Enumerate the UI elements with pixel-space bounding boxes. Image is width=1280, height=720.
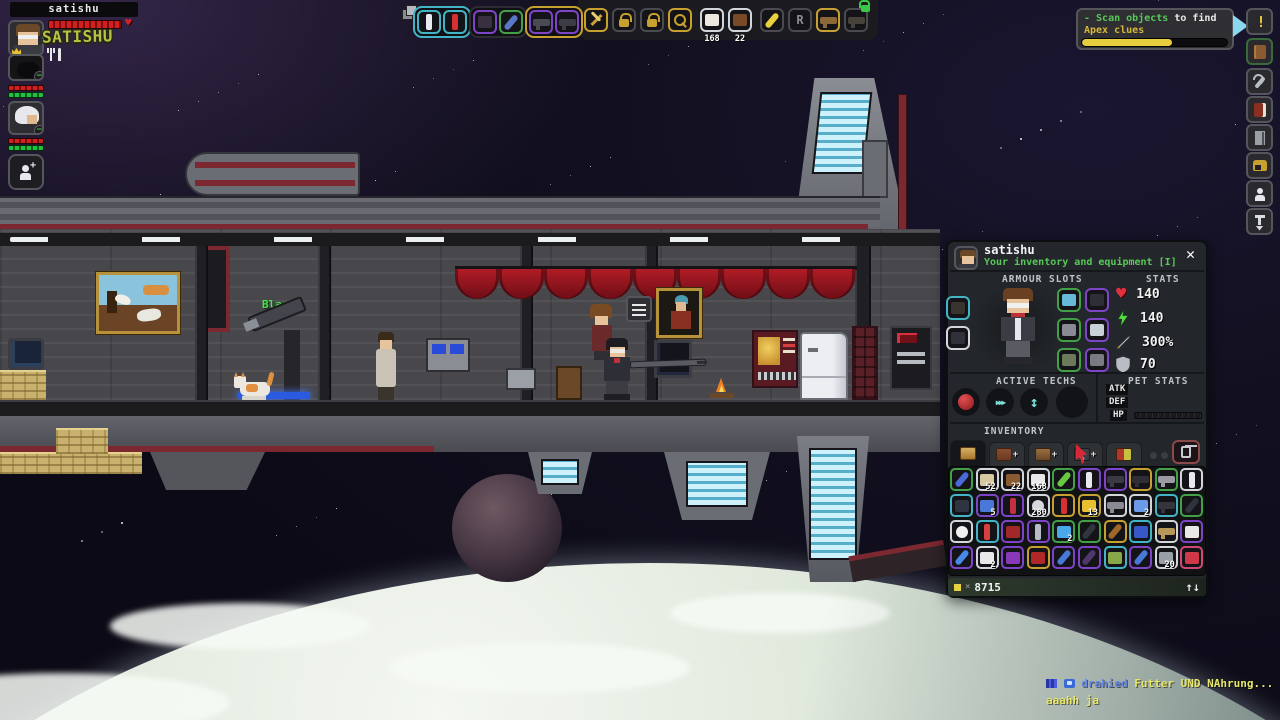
quest-target: Apex: [1084, 25, 1108, 36]
gun-item[interactable]: [1129, 468, 1152, 491]
feather-item[interactable]: [950, 546, 973, 569]
exclamation-icon: [1252, 14, 1268, 30]
console-screen: [432, 344, 446, 354]
star: [1236, 434, 1237, 435]
hat-item[interactable]: [1129, 520, 1152, 543]
flare-item[interactable]: [1052, 494, 1075, 517]
helmet-slot[interactable]: [1057, 288, 1081, 312]
player-portrait[interactable]: [8, 20, 44, 56]
paint-tool-locked[interactable]: [612, 8, 636, 32]
pixels-icon: [954, 584, 961, 591]
panel-item[interactable]: 2: [1052, 520, 1075, 543]
display-line: [783, 338, 795, 341]
device-item[interactable]: 5: [976, 494, 999, 517]
stack-count: 2: [990, 561, 995, 570]
blue-item[interactable]: [1129, 546, 1152, 569]
preview-shirt: [1015, 318, 1021, 340]
gun-item[interactable]: [529, 10, 553, 34]
console: [426, 338, 470, 372]
crew-button[interactable]: [1246, 180, 1273, 207]
stack-count: 168: [704, 35, 719, 44]
stack-count: 52: [985, 483, 995, 492]
bear-item[interactable]: 22: [1001, 468, 1024, 491]
wooden-crate: [556, 366, 582, 400]
star: [1060, 120, 1062, 122]
stat-energy: 140: [1116, 307, 1163, 329]
pet-hp-bar: [1134, 412, 1202, 419]
cloud: [670, 593, 890, 633]
pearl-earring-painting: [656, 288, 702, 338]
star: [1235, 124, 1236, 125]
tab-dot: [1150, 452, 1157, 459]
back-slot[interactable]: [946, 326, 970, 350]
rod-item[interactable]: [950, 468, 973, 491]
pet-stats-label: PET STATS: [1128, 376, 1188, 387]
helmet-cosmetic-slot[interactable]: [1085, 288, 1109, 312]
npc-coat: [376, 349, 396, 387]
crew-health-bar: [8, 85, 44, 91]
vent-line: [897, 360, 925, 364]
lightning-icon: [1116, 309, 1130, 327]
cosmetic-armour-column: [946, 296, 970, 350]
star: [688, 46, 689, 47]
star: [218, 92, 219, 93]
player-legs: [606, 381, 628, 394]
stack-count: 22: [735, 35, 745, 44]
rocket-item: [984, 524, 990, 540]
book-item[interactable]: [1001, 520, 1024, 543]
sandstone-steps: [56, 428, 108, 454]
attack-value: 300%: [1142, 335, 1173, 350]
star: [121, 522, 123, 524]
pet-preview-circle: [1056, 386, 1088, 418]
plus-label: +: [1052, 450, 1057, 460]
pet-def-label: DEF: [1106, 397, 1128, 408]
locker-icon: [1254, 130, 1266, 146]
engine-pod: [185, 152, 360, 196]
gun-item[interactable]: [555, 10, 579, 34]
star: [101, 531, 103, 533]
hotbar-pair-3: [525, 6, 583, 38]
stack-count: 13: [1088, 509, 1098, 518]
rifle-selected[interactable]: [816, 8, 840, 32]
pod-window: [686, 461, 748, 507]
medkit-item: [705, 14, 719, 26]
head-cosmetic-slot: [951, 302, 965, 314]
cat-patch: [246, 384, 258, 392]
fork-weapon: [1086, 472, 1092, 488]
sword-item: [1010, 498, 1016, 514]
pickaxe-icon: [588, 12, 604, 28]
painting-hills: [143, 285, 169, 295]
star: [1177, 226, 1178, 227]
magnify-icon: [672, 12, 688, 28]
plus-label: +: [1013, 450, 1018, 460]
star: [473, 60, 474, 61]
disk-item[interactable]: 2: [1129, 494, 1152, 517]
cap-item[interactable]: [1104, 546, 1127, 569]
gun-item: [559, 19, 576, 26]
hull-pod: [528, 452, 592, 494]
sort-button[interactable]: ↑↓: [1186, 580, 1200, 594]
legs-slot: [1062, 354, 1076, 366]
dice-item: [1185, 552, 1199, 564]
stack-count: 280: [1031, 509, 1046, 518]
crew-portrait-blacky[interactable]: −: [8, 54, 44, 81]
star: [943, 14, 944, 15]
bow-item[interactable]: [1180, 494, 1203, 517]
curtain-scallop: [766, 269, 810, 299]
bandage-item[interactable]: 52: [976, 468, 999, 491]
paper-item: [1185, 526, 1199, 538]
add-crew-button[interactable]: [8, 154, 44, 190]
fridge-door-split: [802, 376, 846, 378]
star: [883, 41, 884, 42]
hull-pod: [150, 452, 265, 490]
chest-slot[interactable]: [1057, 318, 1081, 342]
star: [258, 74, 259, 75]
hotbar-weapons: R: [760, 8, 868, 32]
medkit-item[interactable]: 168: [1027, 468, 1050, 491]
red-screen: [897, 333, 917, 343]
dismiss-badge[interactable]: −: [34, 125, 44, 135]
collections-button[interactable]: [1246, 124, 1273, 151]
violin-item: [1107, 523, 1123, 540]
wall-beam: [318, 246, 331, 400]
curtain-scallop: [721, 269, 765, 299]
sword-item: [1035, 524, 1041, 540]
curtain-scallop: [810, 269, 854, 299]
beam-down-icon: [1252, 214, 1268, 230]
star: [550, 184, 551, 185]
wall-beam: [195, 246, 208, 400]
gold-screen: [758, 337, 780, 365]
arcade-display: [752, 330, 798, 388]
guitar-item: [1082, 523, 1098, 540]
hotbar-consumables: 16822: [700, 8, 752, 32]
feather-item: [954, 549, 970, 566]
bear-item: [733, 14, 747, 26]
sword-item[interactable]: [1001, 494, 1024, 517]
jump-icon: ↕: [1029, 393, 1038, 411]
matter-manipulator[interactable]: [584, 8, 608, 32]
crew-energy-bar: [8, 92, 44, 98]
chat-line-2: aaahh ja: [1046, 694, 1099, 707]
curtain-scallop: [544, 269, 588, 299]
panel-vdivider: [1096, 374, 1098, 422]
star: [453, 69, 454, 70]
rifle-item: [848, 17, 865, 24]
journal-icon: [1254, 103, 1266, 117]
tab-food[interactable]: [1106, 442, 1142, 466]
quest-log-button[interactable]: [1246, 8, 1273, 35]
display-line: [783, 350, 795, 353]
chest-cosmetic-slot: [1090, 324, 1104, 336]
star-item[interactable]: 280: [1027, 494, 1050, 517]
star: [238, 83, 239, 84]
quest-progress-bar: [1081, 38, 1228, 47]
dark-item[interactable]: [473, 10, 497, 34]
ship-chimney: [862, 140, 888, 198]
purple-item: [1082, 549, 1098, 566]
goggles-item[interactable]: [950, 494, 973, 517]
campfire: [710, 376, 734, 400]
panel-bottom-bar: × 8715 ↑↓: [948, 578, 1206, 596]
star: [336, 508, 337, 509]
red-pipe-column: [852, 326, 878, 400]
blue-item: [1133, 549, 1149, 566]
document-item[interactable]: 2: [976, 546, 999, 569]
star: [648, 64, 649, 65]
star: [668, 55, 669, 56]
journal-button[interactable]: [1246, 96, 1273, 123]
quest-text: - Scan objects to find Apex clues: [1084, 13, 1226, 37]
sword-item[interactable]: [1027, 520, 1050, 543]
star: [1020, 138, 1022, 140]
star: [395, 171, 396, 172]
face: [676, 302, 686, 311]
star: [296, 526, 297, 527]
star: [375, 180, 376, 181]
bottle-item[interactable]: [1052, 468, 1075, 491]
robot-part-item[interactable]: 20: [1155, 546, 1178, 569]
chat-avatar-icon: [1064, 679, 1075, 688]
hunger-icon: [47, 48, 63, 64]
deploy-button[interactable]: [1246, 208, 1273, 235]
rocket-item[interactable]: [976, 520, 999, 543]
logs: [710, 393, 734, 398]
player-scarf: [614, 358, 620, 363]
tech-slot-ball[interactable]: [952, 388, 980, 416]
starbound-game-screen: Blacky: [0, 0, 1280, 720]
painting-tree: [107, 291, 117, 313]
legs-cosmetic-slot[interactable]: [1085, 348, 1109, 372]
dash-icon: ▶▶▶: [996, 398, 1004, 407]
blocks-icon: [996, 448, 1012, 461]
heart-icon: ♥: [1116, 284, 1126, 304]
character-preview: [990, 288, 1046, 370]
health-value: 140: [1136, 287, 1159, 302]
crate-icon: [960, 447, 976, 460]
curtain-scallop: [588, 269, 632, 299]
stat-attack: 300%: [1116, 331, 1173, 353]
red-book-item[interactable]: [1027, 546, 1050, 569]
fridge-handle: [808, 348, 818, 352]
cloud: [110, 603, 370, 649]
crew-face: [27, 115, 37, 124]
tab-objects[interactable]: +: [1028, 442, 1064, 466]
gun-item: [1158, 528, 1175, 535]
flare-item[interactable]: [443, 10, 467, 34]
banana-item[interactable]: [760, 8, 784, 32]
wire-tool-locked[interactable]: [640, 8, 664, 32]
fridge: [800, 332, 848, 400]
plus-label: +: [1091, 450, 1096, 460]
npc-boots: [378, 387, 394, 400]
dali-painting: [96, 272, 180, 334]
goggles-item: [955, 500, 969, 512]
guitar-item[interactable]: [1078, 520, 1101, 543]
quest-objective: - Scan objects: [1084, 13, 1168, 24]
tuning-fork-item: [426, 14, 432, 30]
gun-item[interactable]: [1155, 494, 1178, 517]
distortion-sphere-icon: [958, 394, 974, 410]
cloud: [0, 673, 230, 720]
ship-roof: [0, 196, 880, 226]
console-screen: [450, 344, 464, 354]
head-cosmetic-slot[interactable]: [946, 296, 970, 320]
star: [610, 157, 611, 158]
crafting-button[interactable]: [1246, 68, 1273, 95]
star: [413, 87, 414, 88]
mini-face: [962, 256, 974, 264]
star: [160, 194, 161, 195]
tech-slot-dash[interactable]: ▶▶▶: [986, 388, 1014, 416]
purple-item[interactable]: [1078, 546, 1101, 569]
hotbar-pair-1: [413, 6, 471, 38]
blue-item[interactable]: [1052, 546, 1075, 569]
stack-count: 2: [1144, 509, 1149, 518]
close-button[interactable]: ✕: [1186, 245, 1195, 263]
star: [982, 231, 983, 232]
gun-item[interactable]: [1155, 520, 1178, 543]
blue-rod-item[interactable]: [499, 10, 523, 34]
essentials-bar: [584, 8, 692, 32]
player-nameplate: satishu: [10, 2, 138, 17]
hull-tip: [848, 540, 947, 582]
chat-line-1: drahied Futter UND NAhrung...: [1046, 677, 1273, 690]
tuning-fork-item[interactable]: [417, 10, 441, 34]
curtain-scallop: [499, 269, 543, 299]
gun-item[interactable]: [1104, 494, 1127, 517]
bear-item[interactable]: 22: [728, 8, 752, 32]
star: [1158, 0, 1159, 1]
preview-glasses: [1007, 303, 1029, 308]
helmet-slot: [1062, 294, 1076, 306]
tab-materials[interactable]: +: [989, 442, 1025, 466]
battery-item[interactable]: 13: [1078, 494, 1101, 517]
chat-badge-icon: [1046, 679, 1057, 688]
helmet-cosmetic-slot: [1090, 294, 1104, 306]
star: [1256, 425, 1257, 426]
banner-item[interactable]: [1001, 546, 1024, 569]
heart-icon: ♥: [125, 16, 132, 29]
sword-icon: [1116, 334, 1132, 350]
dice-item[interactable]: [1180, 546, 1203, 569]
lock-icon: [616, 12, 632, 28]
pet-atk-label: ATK: [1106, 384, 1128, 395]
porthole-window: [8, 338, 44, 370]
violin-item[interactable]: [1104, 520, 1127, 543]
blue-rod-item: [503, 14, 519, 31]
tech-slot-jump[interactable]: ↕: [1020, 388, 1048, 416]
sandstone-ledge: [0, 370, 46, 400]
panel-portrait: [954, 246, 978, 270]
quest-target2: clues: [1114, 25, 1144, 36]
chat-username: drahied: [1081, 677, 1127, 690]
stack-count: 2: [1067, 535, 1072, 544]
flare-item: [452, 14, 458, 30]
inventory-tabs: +++: [950, 440, 1142, 466]
food-icon: [1116, 448, 1132, 461]
engine-stripe: [195, 180, 355, 186]
preview-pants: [1006, 341, 1030, 357]
inventory-label: INVENTORY: [984, 426, 1044, 437]
pixels-x-label: ×: [965, 582, 970, 592]
crew-icon: [1252, 186, 1268, 202]
codex-icon: [1254, 45, 1266, 59]
list-lines-icon: [632, 302, 646, 316]
player-glasses: [610, 349, 625, 353]
turret-base: [284, 330, 300, 400]
display-buttons: [758, 372, 796, 380]
ship-floor: [0, 400, 940, 416]
star: [786, 471, 787, 472]
gun-item[interactable]: [1104, 468, 1127, 491]
orb-item: [956, 526, 968, 538]
gun-item: [1158, 502, 1175, 509]
star: [766, 480, 767, 481]
crew-portrait-npc[interactable]: −: [8, 101, 44, 135]
paper-item[interactable]: [1180, 520, 1203, 543]
quest-connector: to find: [1168, 13, 1216, 24]
chest-cosmetic-slot[interactable]: [1085, 318, 1109, 342]
orb-item[interactable]: [950, 520, 973, 543]
book-item: [1006, 526, 1020, 538]
r-slot[interactable]: R: [788, 8, 812, 32]
gun-item[interactable]: [1155, 468, 1178, 491]
gun-item: [533, 19, 550, 26]
portrait-glasses: [18, 35, 38, 39]
codex-button[interactable]: [1246, 38, 1273, 65]
ceiling-lights: [10, 237, 930, 242]
trash-button[interactable]: [1172, 440, 1200, 464]
medkit-item[interactable]: 168: [700, 8, 724, 32]
pet-hp-label: HP: [1110, 410, 1127, 421]
curtain-scallop: [455, 269, 499, 299]
tab-dot: [1161, 452, 1168, 459]
dress: [671, 311, 691, 329]
stack-count: 22: [1011, 483, 1021, 492]
star: [863, 50, 864, 51]
gun-item: [1132, 476, 1149, 483]
objects-icon: [1035, 448, 1051, 461]
star: [316, 517, 317, 518]
star: [3, 106, 4, 107]
cat-blacky: [234, 374, 274, 400]
player-name-overlay: SATISHU: [42, 26, 113, 46]
dark-console: [890, 326, 932, 390]
star: [276, 535, 277, 536]
sewing-button[interactable]: [1246, 152, 1273, 179]
star: [198, 101, 199, 102]
dagger-item[interactable]: [1180, 468, 1203, 491]
dismiss-badge[interactable]: −: [34, 71, 44, 81]
defense-value: 70: [1140, 357, 1156, 372]
tab-items[interactable]: [950, 440, 986, 466]
quest-progress-fill: [1082, 39, 1172, 46]
npc-face: [595, 316, 608, 325]
npc-woman: [374, 332, 398, 400]
legs-slot[interactable]: [1057, 348, 1081, 372]
fork-weapon[interactable]: [1078, 468, 1101, 491]
bottle-item: [1056, 471, 1072, 488]
stack-count: 20: [1165, 561, 1175, 570]
active-techs-label: ACTIVE TECHS: [996, 376, 1077, 387]
inspection-tool[interactable]: [668, 8, 692, 32]
cat-tail: [266, 372, 274, 387]
lock-icon: [644, 12, 660, 28]
